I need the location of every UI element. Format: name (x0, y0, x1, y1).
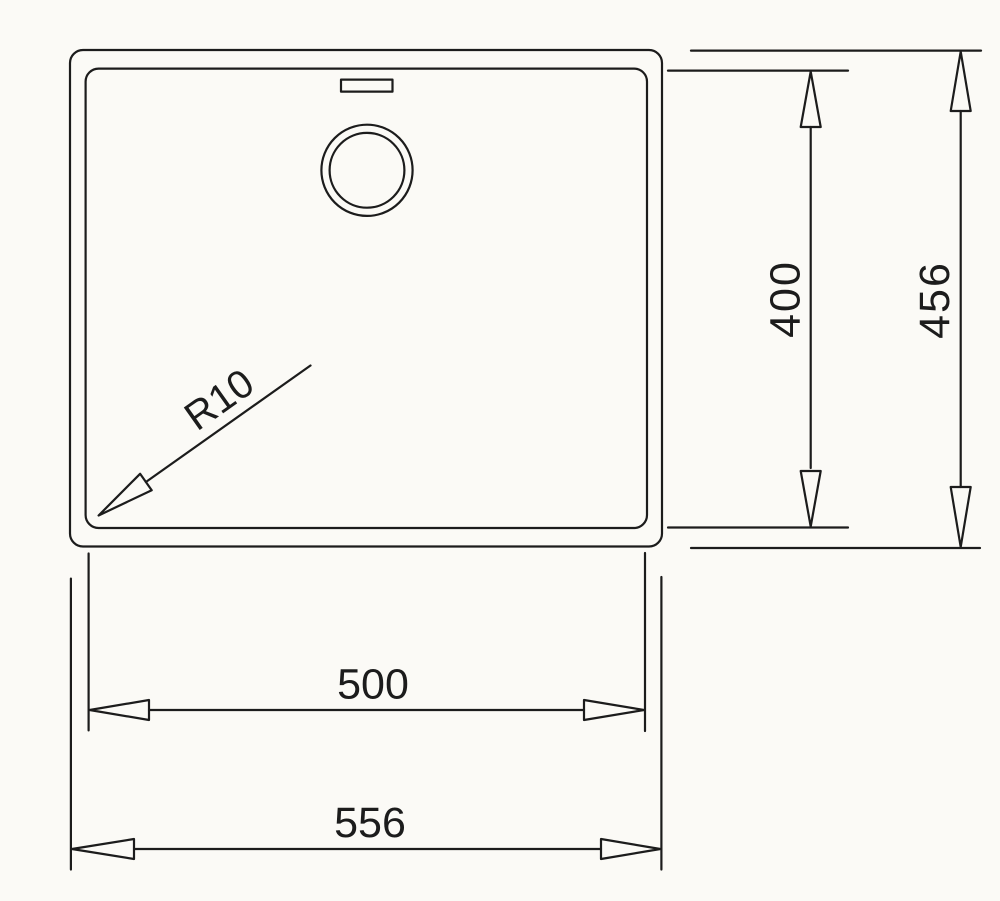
svg-text:556: 556 (334, 799, 406, 847)
svg-text:500: 500 (337, 661, 409, 709)
svg-text:456: 456 (911, 261, 959, 339)
svg-text:400: 400 (762, 260, 810, 338)
